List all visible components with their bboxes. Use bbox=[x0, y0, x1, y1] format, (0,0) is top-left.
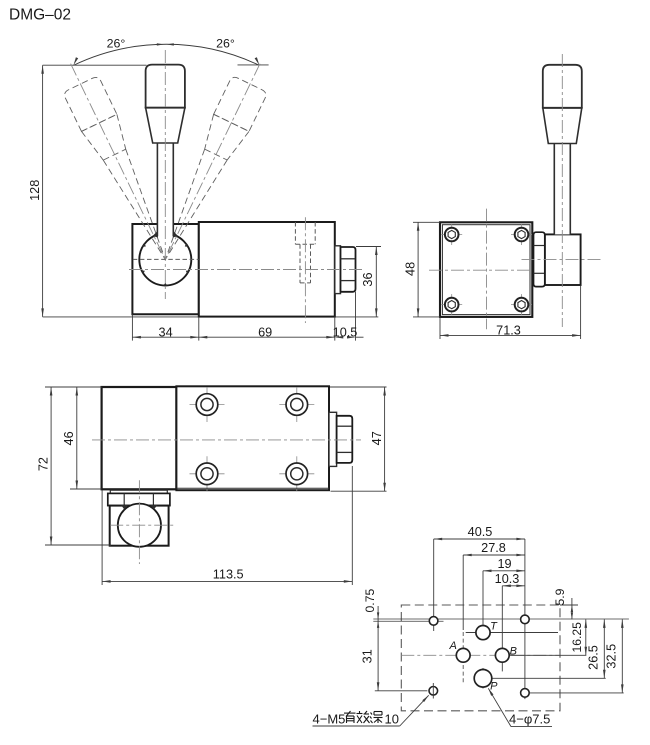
svg-text:5.9: 5.9 bbox=[553, 588, 567, 605]
svg-text:47: 47 bbox=[370, 431, 384, 445]
svg-text:31: 31 bbox=[361, 649, 375, 663]
svg-text:0.75: 0.75 bbox=[363, 589, 377, 613]
svg-text:26°: 26° bbox=[107, 37, 126, 51]
svg-text:A: A bbox=[449, 640, 457, 652]
svg-text:DMG–02: DMG–02 bbox=[9, 7, 71, 24]
svg-text:10: 10 bbox=[385, 712, 399, 727]
svg-text:69: 69 bbox=[258, 326, 272, 340]
svg-text:46: 46 bbox=[62, 431, 76, 445]
svg-text:128: 128 bbox=[28, 180, 42, 201]
svg-text:72: 72 bbox=[36, 457, 50, 471]
svg-text:113.5: 113.5 bbox=[213, 567, 244, 581]
svg-text:36: 36 bbox=[361, 272, 375, 286]
svg-text:10.3: 10.3 bbox=[495, 572, 520, 586]
svg-text:26.5: 26.5 bbox=[587, 645, 601, 670]
svg-text:48: 48 bbox=[403, 262, 417, 276]
svg-text:19: 19 bbox=[497, 557, 511, 571]
svg-text:40.5: 40.5 bbox=[468, 525, 493, 539]
svg-text:27.8: 27.8 bbox=[481, 541, 506, 555]
svg-text:10.5: 10.5 bbox=[333, 326, 358, 340]
svg-text:26°: 26° bbox=[216, 37, 235, 51]
svg-text:16.25: 16.25 bbox=[570, 622, 584, 653]
svg-text:4−φ7.5: 4−φ7.5 bbox=[509, 712, 550, 727]
svg-text:71.3: 71.3 bbox=[496, 323, 521, 337]
svg-text:4−M5: 4−M5 bbox=[313, 712, 346, 727]
svg-text:34: 34 bbox=[159, 326, 173, 340]
svg-text:P: P bbox=[490, 681, 498, 693]
svg-text:32.5: 32.5 bbox=[605, 644, 619, 669]
svg-text:B: B bbox=[510, 645, 517, 657]
